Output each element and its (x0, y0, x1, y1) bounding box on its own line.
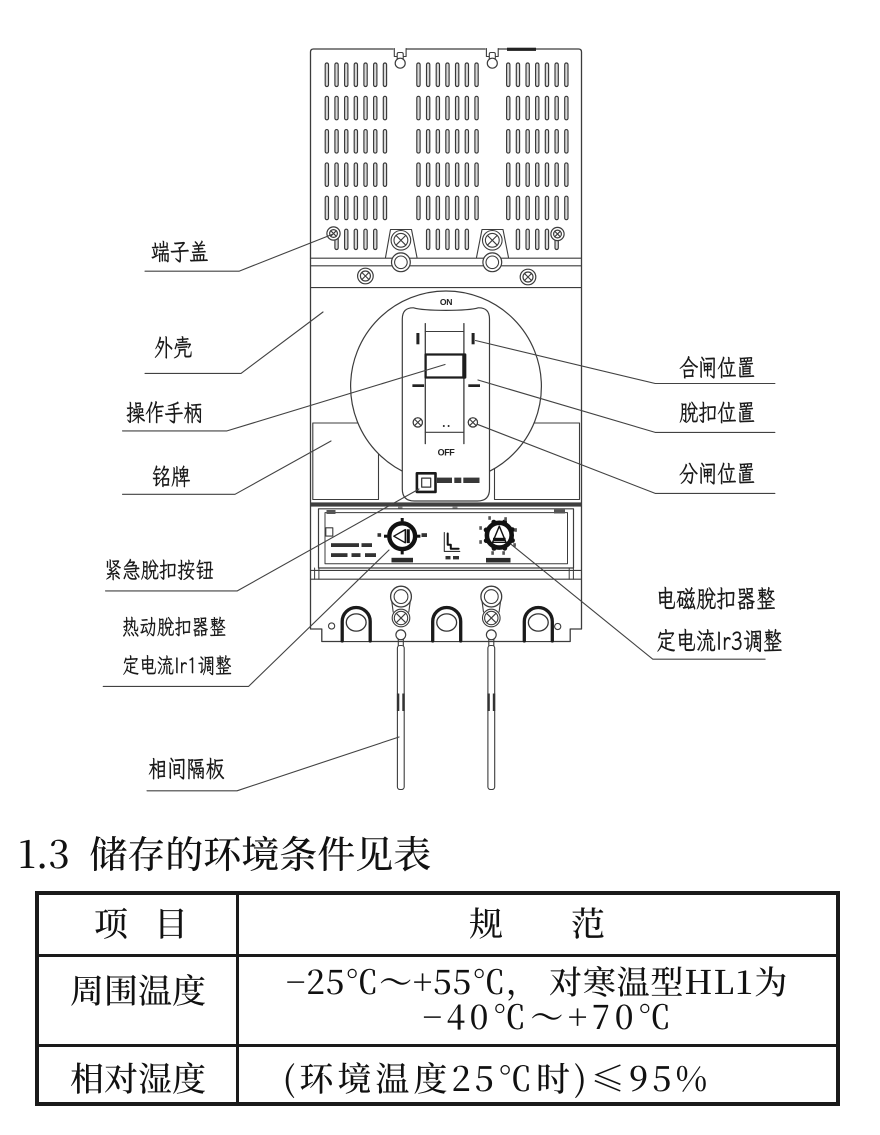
svg-text:ON: ON (440, 297, 452, 307)
svg-text:OFF: OFF (438, 448, 456, 458)
